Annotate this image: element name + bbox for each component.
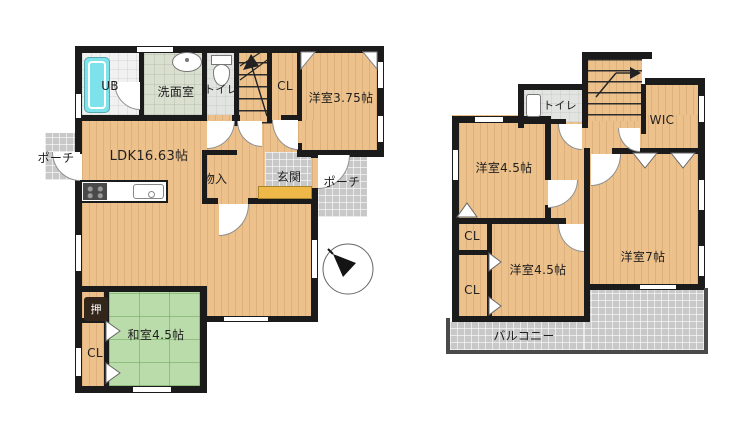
washbasin-faucet (185, 58, 189, 62)
door-triangle-icon (105, 320, 121, 342)
window (377, 116, 384, 142)
window (698, 246, 705, 276)
wall (645, 78, 705, 85)
corner-window-icon (300, 51, 316, 70)
room-label-closet-upper: CL (458, 228, 486, 244)
wall (584, 218, 590, 224)
room-label-ldk: LDK16.63帖 (98, 147, 200, 165)
door-triangle-icon (632, 152, 658, 169)
stairs-arrow-icon (239, 50, 272, 124)
compass-icon (321, 242, 375, 296)
window (75, 94, 82, 118)
floorplan-canvas: UB 洗面室 トイレ CL 洋室3.75帖 LDK16.63帖 物入 玄関 ポー… (0, 0, 740, 434)
door-triangle-icon (670, 152, 696, 169)
room-label-western-room-1f: 洋室3.75帖 (303, 90, 379, 106)
room-label-ub: UB (92, 78, 128, 94)
room-label-western-room-east: 洋室7帖 (608, 249, 678, 265)
window (75, 348, 82, 376)
wall (452, 316, 590, 322)
corner-window-icon (362, 51, 378, 70)
room-label-closet-hall: CL (272, 78, 298, 94)
room-label-porch-east: ポーチ (318, 174, 366, 190)
wall (75, 46, 384, 53)
room-label-entrance: 玄関 (268, 169, 310, 185)
window (75, 235, 82, 271)
room-label-oshiire: 押 (84, 297, 108, 321)
wall (202, 150, 237, 155)
wall (79, 286, 207, 292)
room-label-washroom: 洗面室 (150, 84, 202, 100)
window (640, 284, 676, 290)
door-triangle-icon (105, 362, 121, 384)
wall (452, 250, 492, 255)
room-label-western-room-north: 洋室4.5帖 (466, 160, 542, 176)
room-label-storage: 物入 (196, 171, 234, 187)
wall (311, 150, 318, 158)
room-label-closet-lower: CL (458, 282, 486, 298)
balcony-tile-east (584, 290, 705, 350)
window (377, 62, 384, 88)
wall (584, 148, 590, 322)
kitchen-faucet (148, 191, 155, 198)
window (452, 150, 459, 180)
entrance-step (258, 186, 312, 199)
room-label-closet-washitsu: CL (82, 345, 108, 361)
washbasin (172, 52, 202, 72)
balcony-wall (446, 318, 450, 354)
stairs-arrow-icon (588, 59, 642, 121)
room-label-porch-west: ポーチ (30, 150, 82, 166)
window (311, 240, 318, 278)
wall (75, 115, 207, 121)
room-label-toilet2: トイレ (536, 97, 584, 113)
room-label-japanese-room: 和室4.5帖 (120, 327, 192, 343)
room-label-western-room-south: 洋室4.5帖 (500, 262, 576, 278)
wall (200, 286, 207, 392)
window (698, 96, 705, 122)
wall (518, 84, 588, 90)
room-label-wic: WIC (640, 112, 684, 128)
kitchen-stove (83, 183, 107, 200)
balcony-wall (704, 288, 708, 354)
wall (582, 52, 652, 59)
window (133, 386, 171, 393)
door-triangle-icon (488, 296, 502, 316)
balcony-wall (446, 350, 708, 354)
room-label-toilet1: トイレ (202, 82, 240, 96)
wall (202, 198, 218, 204)
window (475, 116, 503, 123)
window (224, 316, 268, 322)
door-triangle-icon (456, 202, 478, 218)
window (698, 180, 705, 210)
room-label-balcony: バルコニー (482, 328, 566, 344)
window (137, 46, 173, 53)
wall (452, 218, 566, 224)
wall (545, 116, 551, 180)
